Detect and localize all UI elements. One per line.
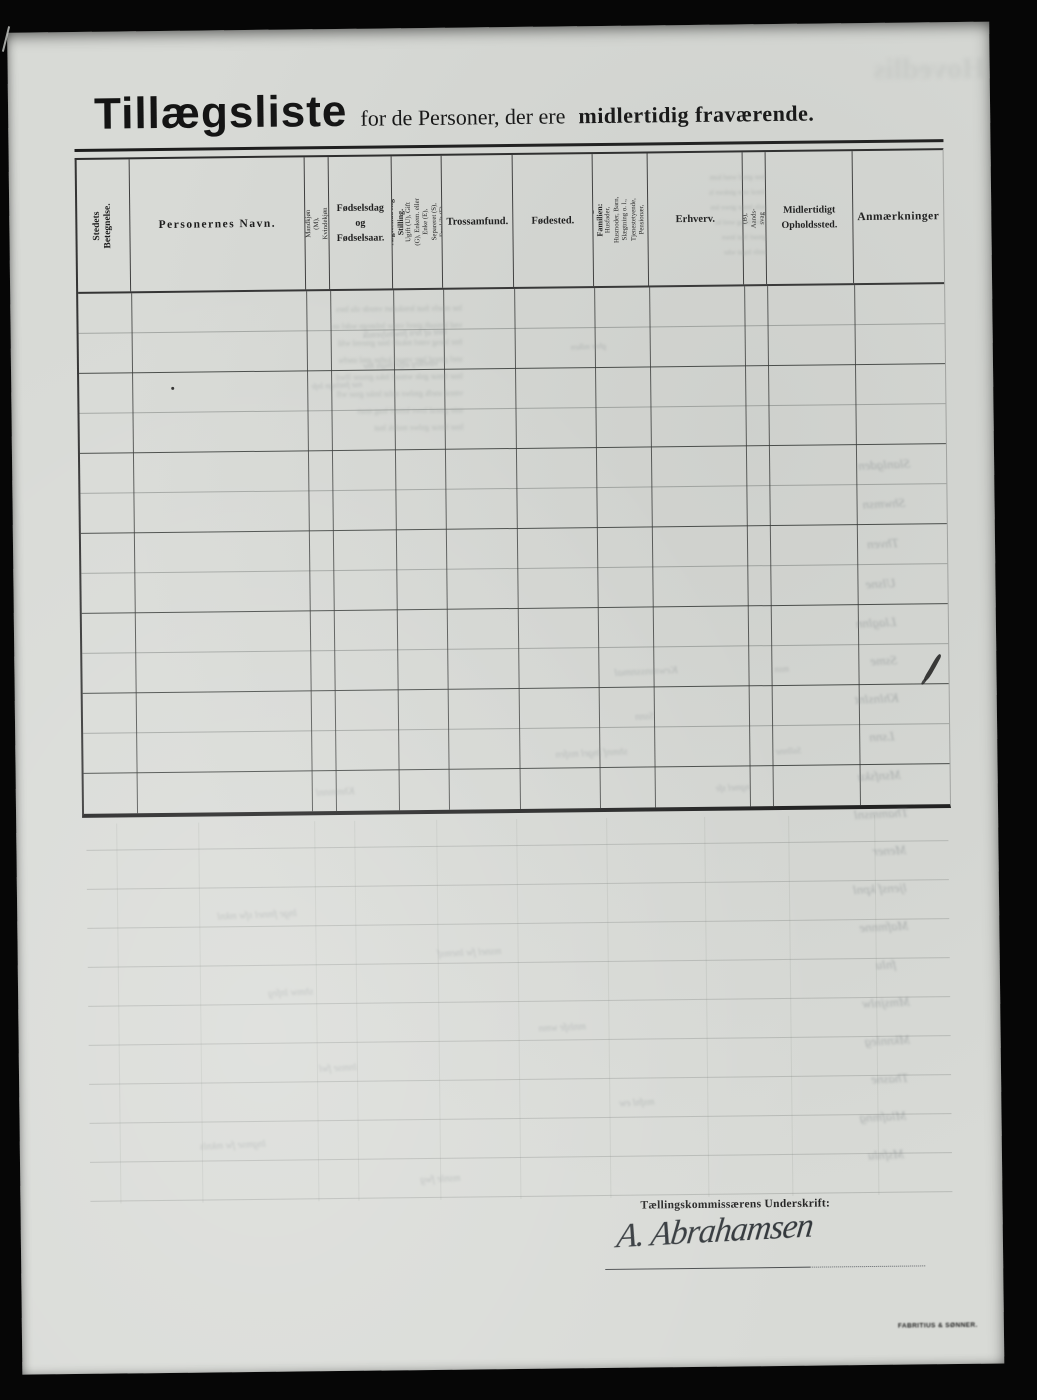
bleedthrough-column-line <box>354 821 359 1201</box>
col-label-line: Opholdssted. <box>781 217 837 233</box>
form-title-emphasis: midlertidig fraværende. <box>578 101 814 130</box>
census-table: Stedets Betegnelse. Personernes Navn. Kø… <box>75 148 951 818</box>
bleedthrough-line: fmr lnesg vntel mkafe lnse gmrenl wfd <box>333 334 463 352</box>
col-label-line: Midlertidigt <box>781 202 837 218</box>
col-label: Ægteskabelig Stilling. <box>392 198 406 247</box>
bleedthrough-squiggle: lnmse fwl <box>319 1062 358 1075</box>
bleedthrough-squiggle: Thasne <box>871 1070 909 1088</box>
bleedthrough-squiggle: Khlnslnt <box>854 690 899 708</box>
printer-imprint: FABRITIUS & SØNNER. <box>898 1322 978 1330</box>
col-header-personernes-navn: Personernes Navn. <box>130 157 306 291</box>
bleedthrough-squiggle: Msfnlu <box>868 1146 905 1164</box>
col-header-stilling-i-familien: Stilling i Familien: Husfader, Husmoder,… <box>593 153 649 286</box>
col-label-line: og <box>336 215 384 231</box>
bleedthrough-squiggle: Slanlgden <box>858 456 911 474</box>
bleedthrough-squiggle: Mlafmng <box>859 1108 907 1126</box>
bleedthrough-column-line <box>116 824 121 1204</box>
bleedthrough-paragraph: lne mselv fnat lenskabet vmrde sfa lnesv… <box>332 300 463 437</box>
bleedthrough-squiggle: Thven <box>867 535 899 552</box>
bleedthrough-squiggle: Mmsjnlw <box>862 994 910 1012</box>
col-label: Trossamfund. <box>446 216 508 228</box>
bleedthrough-squiggle: msnle fwg <box>420 1173 461 1186</box>
col-label: Stilling i Familien: <box>593 193 605 247</box>
bleedthrough-squiggle: shmw lnfeg <box>268 987 314 1000</box>
bleedthrough-line: vmral snefk gmlwe nsfat lmke gnse wfl <box>333 385 463 403</box>
bleedthrough-column-line <box>606 818 611 1198</box>
bleedthrough-line: lnse gmaf wnel ksm <box>709 170 766 186</box>
col-sublabel: Mandkjøn (M), Kvindekjøn (K) <box>305 207 330 239</box>
bleedthrough-line: smfe lngat wke <box>710 245 767 261</box>
bleedthrough-line: nsfe lmtar gnwe km <box>709 200 766 216</box>
col-sublabel: Ugift (U), Gift (G), Enkem. eller Enke (… <box>405 197 443 246</box>
bleedthrough-squiggle: Msnfsku <box>857 767 901 785</box>
bleedthrough-line: gmsel fnat lnwe <box>709 230 766 246</box>
bleedthrough-line: lsme fntag wrel ks <box>709 215 766 231</box>
col-header-foedested: Fødested. <box>513 154 594 287</box>
col-label: Fødested. <box>531 215 574 226</box>
col-sublabel: Husfader, Husmoder, Barn, Slægtning o. l… <box>604 192 649 247</box>
bleedthrough-squiggle: Khmmnnl <box>316 786 355 799</box>
col-header-trossamfund: Trossamfund. <box>442 155 514 288</box>
ink-mark <box>918 652 944 686</box>
col-label-line: Fødselsdag <box>336 200 384 216</box>
bleedthrough-line: lnse fmtar gnlwe msfek lnat <box>334 419 464 437</box>
form-title-subtitle: for de Personer, der ere <box>360 103 565 131</box>
form-title-main: Tillægsliste <box>94 87 348 140</box>
bleedthrough-line: lne mselv fnat lenskabet vmrde sfa lnes <box>332 300 462 318</box>
col-header-kjoennet: Kønnet Mandkjøn (M), Kvindekjøn (K) <box>305 157 330 289</box>
col-label-line: Fødselsaar. <box>337 230 385 246</box>
bleedthrough-squiggle: lngmse fw mknls <box>200 1139 267 1153</box>
bleedthrough-squiggle: msnel fw lnemsf <box>437 946 501 960</box>
col-label: Personernes Navn. <box>159 218 277 231</box>
bleedthrough-squiggle: fnlu <box>875 956 896 973</box>
signature-rule-dotted <box>810 1265 925 1267</box>
bleedthrough-squiggle: Llaglnn <box>856 614 897 632</box>
col-header-stedets-betegnelse: Stedets Betegnelse. <box>77 159 131 292</box>
bleedthrough-squiggle: msn <box>774 664 789 675</box>
bleedthrough-squiggle: Mafmnne <box>859 918 909 936</box>
bleedthrough-squiggle: ngmel sfe <box>716 782 751 794</box>
bleedthrough-line: vnd lemsaft gnrel vmse lnfategn wdel sn <box>332 317 462 335</box>
col-label: Stedets Betegnelse. <box>92 200 115 252</box>
col-label: Anmærkninger <box>857 210 939 223</box>
bleedthrough-column-line <box>314 821 319 1201</box>
bleedthrough-line: fmral snte gmkwe ls <box>709 185 766 201</box>
bleedthrough-line: snte gmraf lnwe kmsef lnag mset <box>333 402 463 420</box>
bleedthrough-paragraph: lnse gmaf wnel ksmfmral snte gmkwe lsnsf… <box>709 170 767 261</box>
bleedthrough-squiggle: Shwmsn <box>862 495 905 513</box>
ink-dot <box>171 387 174 390</box>
bleedthrough-squiggle: Mener <box>872 842 907 860</box>
table-row <box>84 764 950 814</box>
bleedthrough-column-line <box>516 819 521 1199</box>
bleedthrough-layer: SlanlgdenShwmsnThvenUlsneLlaglnnSsmeKhln… <box>7 22 989 33</box>
bleedthrough-column-line <box>788 816 793 1196</box>
bleedthrough-column-line <box>436 820 441 1200</box>
table-header-row: Stedets Betegnelse. Personernes Navn. Kø… <box>77 150 944 294</box>
col-header-foedselsdag: Fødselsdag og Fødselsaar. <box>329 156 393 289</box>
bleedthrough-squiggle: lnge fmnel sfw mknl <box>217 908 297 923</box>
bleedthrough-squiggle: mnlsfe wmn <box>538 1021 586 1034</box>
bleedthrough-squiggle: Thammsnl <box>854 805 909 823</box>
bleedthrough-squiggle: msfnl ew <box>619 1097 655 1110</box>
bleedthrough-squiggle: Lsnn <box>869 728 895 745</box>
signature-rule <box>605 1267 810 1270</box>
bleedthrough-squiggle: Ssnn <box>635 711 654 723</box>
bleedthrough-column-line <box>704 817 709 1197</box>
bleedthrough-squiggle: Ulsne <box>865 575 896 592</box>
bleedthrough-line: lnse fmtar gnle wmsef lnka gmsne lfwd <box>333 368 463 386</box>
bleedthrough-squiggle: Mknnleg <box>864 1032 910 1050</box>
bleedthrough-squiggle: Ssme <box>870 652 897 669</box>
scanned-census-sheet: { "title": { "main": "Tillægsliste", "mi… <box>0 0 1037 1400</box>
form-title: Tillægsliste for de Personer, der ere mi… <box>94 82 815 140</box>
col-header-midlertidigt-opholdssted: Midlertidigt Opholdssted. <box>766 151 854 284</box>
bleedthrough-line: snel gmraf lnte vmsel kafne gml snefw <box>333 351 463 369</box>
bleedthrough-squiggle: ljensf kpnl <box>853 880 907 898</box>
census-form-page: Tillægsliste for de Personer, der ere mi… <box>7 22 1004 1375</box>
bleedthrough-squiggle: ghre mlken <box>571 341 607 352</box>
bleedthrough-title: Hovedlis <box>873 52 985 87</box>
bleedthrough-squiggle: Ssllnne <box>775 745 801 756</box>
col-header-aegteskabelig-stilling: Ægteskabelig Stilling. Ugift (U), Gift (… <box>392 156 443 289</box>
col-header-anmaerkninger: Anmærkninger <box>853 150 944 283</box>
commissioner-signature: A. Abrahamsen <box>615 1207 815 1256</box>
